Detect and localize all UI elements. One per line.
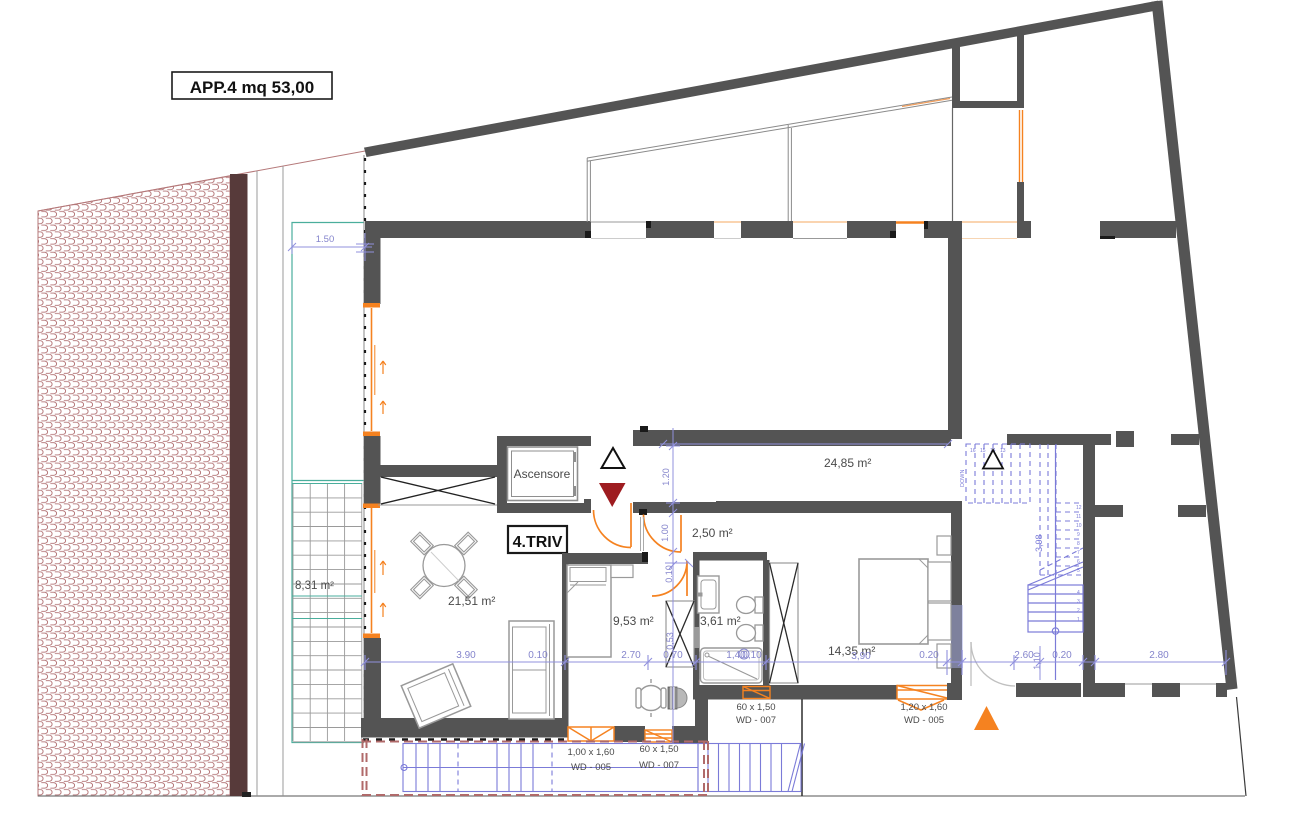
svg-text:1.00: 1.00 [660,524,670,542]
svg-text:WD - 005: WD - 005 [904,715,944,726]
svg-text:9: 9 [1077,532,1080,538]
svg-text:21,51 m²: 21,51 m² [448,594,495,608]
svg-text:2.70: 2.70 [621,650,641,661]
svg-text:8,31 m²: 8,31 m² [295,580,334,592]
svg-text:APP.4 mq 53,00: APP.4 mq 53,00 [190,78,314,97]
svg-text:0.20: 0.20 [1052,650,1072,661]
svg-text:2,50 m²: 2,50 m² [692,526,733,540]
svg-text:1.20: 1.20 [661,468,671,486]
svg-text:3.90: 3.90 [456,650,476,661]
svg-text:7: 7 [1077,550,1080,556]
svg-text:0.10: 0.10 [528,650,548,661]
svg-text:11: 11 [1076,514,1081,520]
svg-text:24,85 m²: 24,85 m² [824,456,871,470]
svg-text:WD - 007: WD - 007 [736,715,776,726]
svg-text:60 x 1,50: 60 x 1,50 [639,744,678,755]
svg-text:3,98: 3,98 [1034,534,1044,552]
svg-text:1,00 x 1,60: 1,00 x 1,60 [567,747,614,758]
svg-text:3,61 m²: 3,61 m² [700,614,741,628]
svg-text:1: 1 [1077,617,1080,623]
svg-text:60 x 1,50: 60 x 1,50 [736,702,775,713]
svg-text:WD - 005: WD - 005 [571,762,611,773]
svg-text:Ascensore: Ascensore [514,467,571,481]
svg-text:16: 16 [970,448,976,454]
svg-text:WD - 007: WD - 007 [639,760,679,771]
svg-text:1,20 x 1,60: 1,20 x 1,60 [900,702,947,713]
svg-text:3: 3 [1077,599,1080,605]
svg-text:10: 10 [1076,523,1082,529]
svg-text:0,53: 0,53 [665,632,675,650]
svg-text:9,53 m²: 9,53 m² [613,614,654,628]
svg-text:13: 13 [1000,448,1006,454]
svg-text:4: 4 [1077,590,1080,596]
svg-text:2.80: 2.80 [1149,650,1169,661]
svg-text:3,90: 3,90 [851,651,871,662]
svg-text:12: 12 [1076,505,1082,511]
svg-text:DOWN: DOWN [960,470,966,487]
svg-text:4.TRIV: 4.TRIV [513,534,563,551]
svg-text:2: 2 [1077,608,1080,614]
svg-text:0.20: 0.20 [919,650,939,661]
svg-text:8: 8 [1077,541,1080,547]
svg-text:1.50: 1.50 [316,234,335,245]
svg-text:15: 15 [980,448,986,454]
svg-text:0.10: 0.10 [664,565,674,583]
